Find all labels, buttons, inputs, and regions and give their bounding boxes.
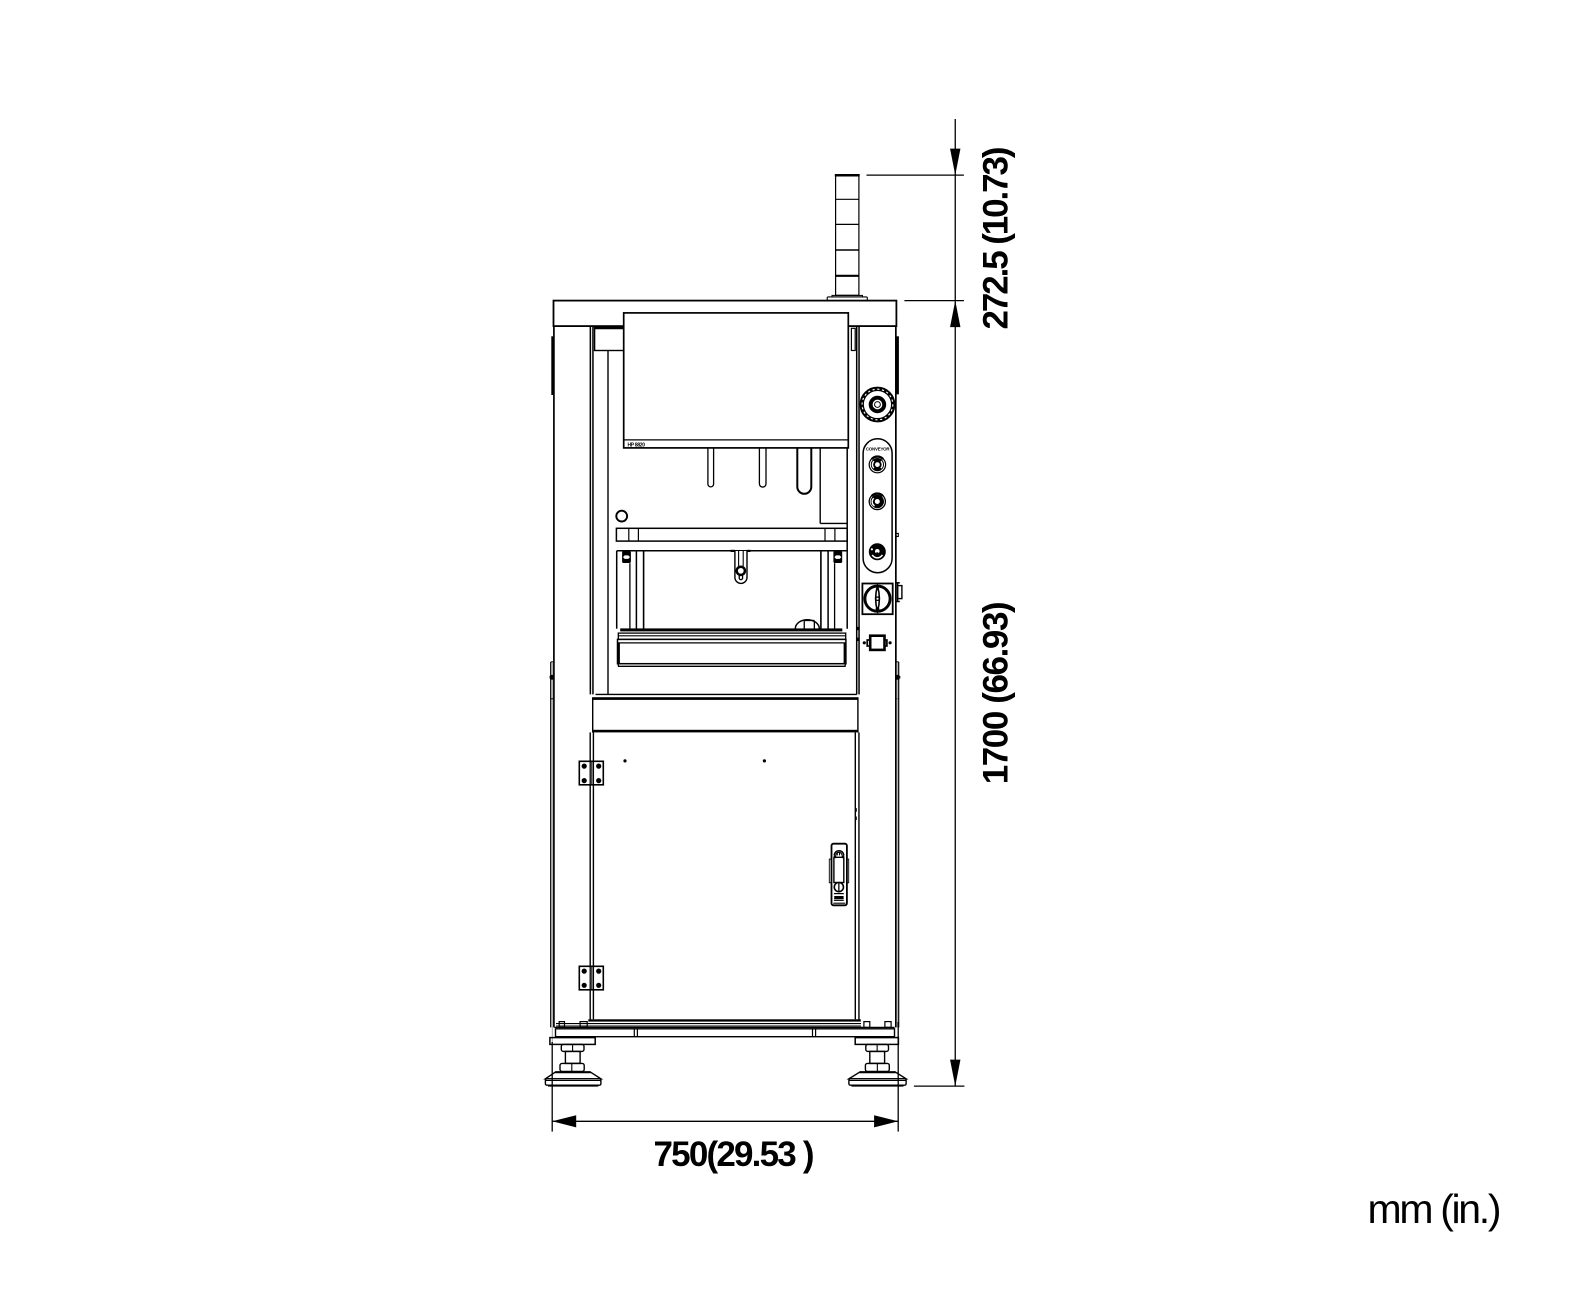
svg-text:mm (in.): mm (in.) [1368,1186,1502,1232]
svg-text:1700 (66.93): 1700 (66.93) [977,601,1016,784]
svg-text:272.5 (10.73): 272.5 (10.73) [977,147,1016,330]
svg-text:750(29.53 ): 750(29.53 ) [654,1135,815,1174]
svg-text:HP 8820: HP 8820 [628,443,646,449]
svg-text:CONVEYOR: CONVEYOR [866,447,891,452]
